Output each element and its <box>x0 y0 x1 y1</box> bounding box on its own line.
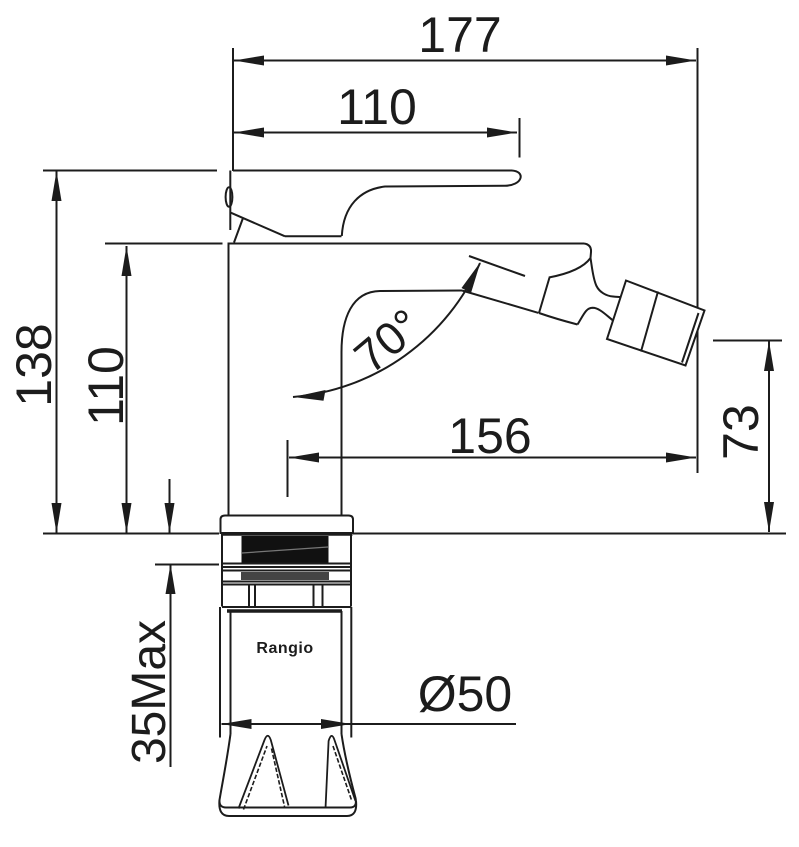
svg-text:177: 177 <box>418 7 501 63</box>
svg-text:70°: 70° <box>344 298 431 383</box>
svg-text:Ø50: Ø50 <box>418 666 513 722</box>
svg-text:156: 156 <box>448 408 531 464</box>
svg-text:73: 73 <box>713 404 769 460</box>
svg-text:138: 138 <box>6 323 62 406</box>
svg-text:110: 110 <box>78 346 134 426</box>
svg-text:Rangio: Rangio <box>256 640 313 657</box>
svg-text:110: 110 <box>337 79 417 135</box>
svg-text:35Max: 35Max <box>123 620 176 764</box>
